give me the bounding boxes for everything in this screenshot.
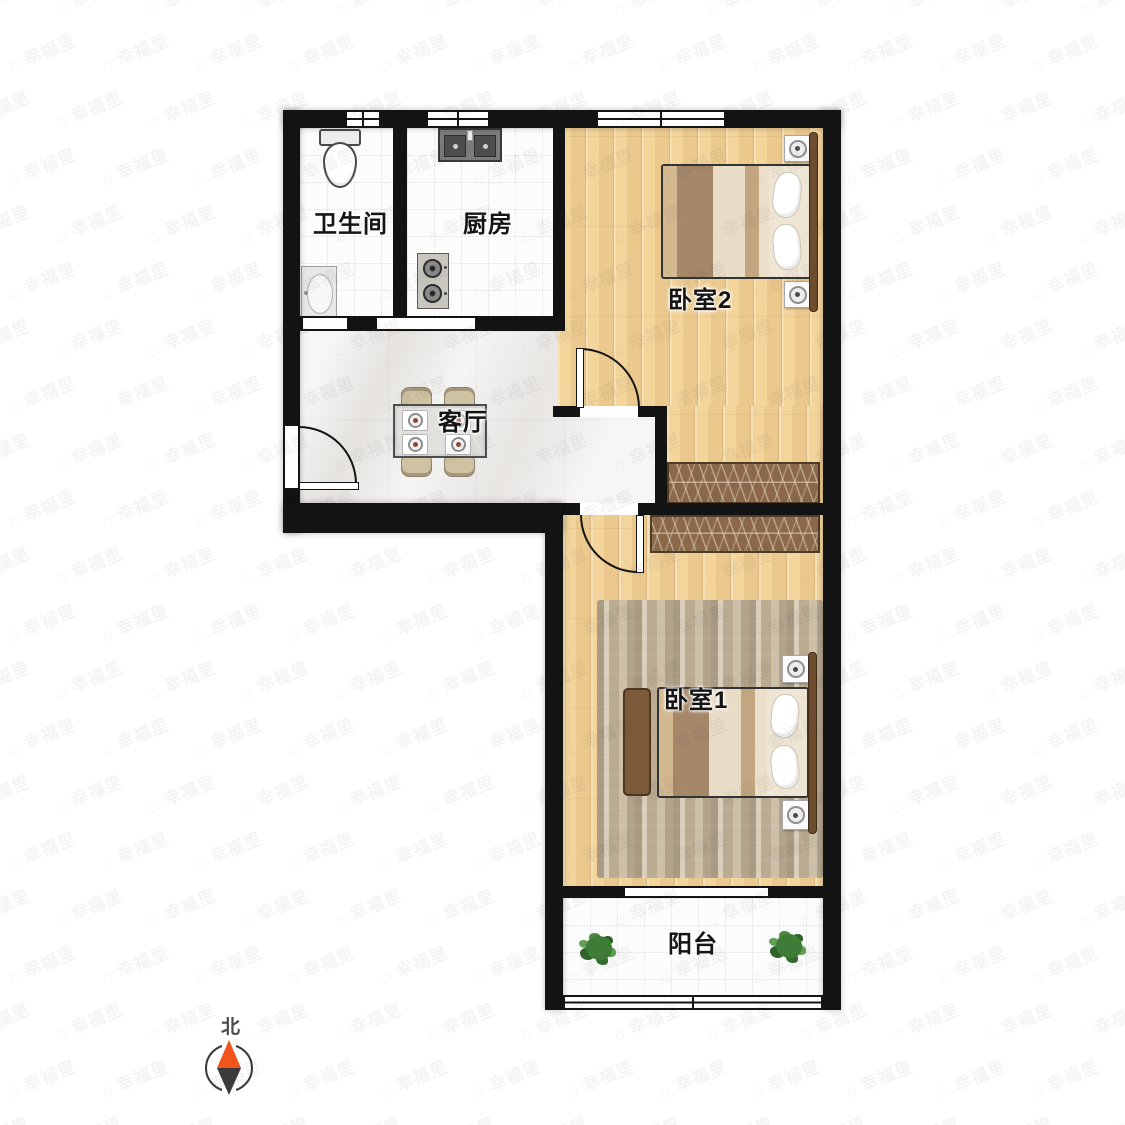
watermark-item: ⌂ 幸福里: [748, 27, 823, 77]
watermark-item: ⌂ 幸福里: [1074, 654, 1125, 704]
watermark-item: ⌂ 幸福里: [469, 27, 544, 77]
compass-needle-north: [217, 1040, 241, 1068]
watermark-item: ⌂ 幸福里: [97, 597, 172, 647]
watermark-item: ⌂ 幸福里: [51, 540, 126, 590]
balcony-sliding-opening: [625, 886, 768, 898]
watermark-item: ⌂ 幸福里: [609, 0, 684, 19]
watermark-item: ⌂ 幸福里: [0, 1110, 33, 1125]
sink-basin-left: [444, 135, 466, 157]
watermark-item: ⌂ 幸福里: [841, 939, 916, 989]
watermark-item: ⌂ 幸福里: [190, 939, 265, 989]
watermark-item: ⌂ 幸福里: [283, 825, 358, 875]
watermark-item: ⌂ 幸福里: [1120, 939, 1125, 989]
watermark-item: ⌂ 幸福里: [562, 27, 637, 77]
watermark-item: ⌂ 幸福里: [190, 369, 265, 419]
watermark-item: ⌂ 幸福里: [0, 996, 33, 1046]
watermark-item: ⌂ 幸福里: [748, 1053, 823, 1103]
watermark-item: ⌂ 幸福里: [4, 27, 79, 77]
watermark-item: ⌂ 幸福里: [0, 0, 33, 19]
watermark-item: ⌂ 幸福里: [841, 483, 916, 533]
watermark-item: ⌂ 幸福里: [562, 1053, 637, 1103]
watermark-item: ⌂ 幸福里: [237, 540, 312, 590]
kitchen-label: 厨房: [463, 212, 513, 238]
watermark-item: ⌂ 幸福里: [888, 996, 963, 1046]
watermark-item: ⌂ 幸福里: [97, 483, 172, 533]
faucet-icon: [467, 130, 473, 141]
watermark-item: ⌂ 幸福里: [981, 768, 1056, 818]
watermark-item: ⌂ 幸福里: [516, 0, 591, 19]
bedroom1-wardrobe: [650, 515, 820, 553]
watermark-item: ⌂ 幸福里: [609, 1110, 684, 1125]
watermark-item: ⌂ 幸福里: [1074, 312, 1125, 362]
watermark-item: ⌂ 幸福里: [4, 483, 79, 533]
watermark-item: ⌂ 幸福里: [469, 1053, 544, 1103]
bedroom1-door-leaf: [636, 515, 644, 573]
watermark-item: ⌂ 幸福里: [841, 369, 916, 419]
watermark-item: ⌂ 幸福里: [376, 711, 451, 761]
watermark-item: ⌂ 幸福里: [934, 369, 1009, 419]
nightstand-icon: [784, 135, 811, 162]
watermark-item: ⌂ 幸福里: [841, 141, 916, 191]
watermark-item: ⌂ 幸福里: [97, 369, 172, 419]
balcony-window: [563, 995, 823, 1010]
watermark-item: ⌂ 幸福里: [51, 0, 126, 19]
pillow-icon: [769, 744, 801, 791]
bedroom2-wardrobe: [667, 462, 820, 504]
stove-icon: [417, 253, 449, 309]
pillow-icon: [769, 693, 801, 739]
watermark-item: ⌂ 幸福里: [516, 1110, 591, 1125]
bed-pillow-area: [767, 689, 807, 796]
watermark-item: ⌂ 幸福里: [888, 882, 963, 932]
wall-balcony-north-right: [768, 886, 823, 898]
watermark-item: ⌂ 幸福里: [1074, 426, 1125, 476]
watermark-item: ⌂ 幸福里: [51, 198, 126, 248]
watermark-item: ⌂ 幸福里: [888, 654, 963, 704]
burner-icon: [423, 284, 442, 303]
watermark-item: ⌂ 幸福里: [1027, 939, 1102, 989]
pillow-icon: [770, 170, 803, 219]
watermark-item: ⌂ 幸福里: [1120, 597, 1125, 647]
watermark-item: ⌂ 幸福里: [934, 483, 1009, 533]
watermark-item: ⌂ 幸福里: [934, 825, 1009, 875]
watermark-item: ⌂ 幸福里: [97, 1053, 172, 1103]
watermark-item: ⌂ 幸福里: [283, 939, 358, 989]
watermark-item: ⌂ 幸福里: [655, 27, 730, 77]
wall-bedroom1-north-right: [639, 503, 841, 515]
watermark-item: ⌂ 幸福里: [1074, 996, 1125, 1046]
burner-icon: [423, 259, 442, 278]
wall-kitchen-bedroom2-divider: [553, 128, 565, 331]
watermark-item: ⌂ 幸福里: [981, 1110, 1056, 1125]
watermark-item: ⌂ 幸福里: [934, 255, 1009, 305]
watermark-item: ⌂ 幸福里: [981, 996, 1056, 1046]
watermark-item: ⌂ 幸福里: [981, 198, 1056, 248]
watermark-item: ⌂ 幸福里: [97, 711, 172, 761]
watermark-item: ⌂ 幸福里: [97, 255, 172, 305]
watermark-item: ⌂ 幸福里: [1027, 597, 1102, 647]
watermark-item: ⌂ 幸福里: [1074, 0, 1125, 19]
pillow-icon: [771, 223, 803, 271]
watermark-item: ⌂ 幸福里: [1074, 198, 1125, 248]
watermark-item: ⌂ 幸福里: [0, 882, 33, 932]
watermark-item: ⌂ 幸福里: [144, 540, 219, 590]
watermark-item: ⌂ 幸福里: [423, 540, 498, 590]
watermark-item: ⌂ 幸福里: [469, 939, 544, 989]
watermark-item: ⌂ 幸福里: [469, 825, 544, 875]
watermark-item: ⌂ 幸福里: [795, 1110, 870, 1125]
watermark-item: ⌂ 幸福里: [51, 84, 126, 134]
watermark-item: ⌂ 幸福里: [237, 654, 312, 704]
watermark-item: ⌂ 幸福里: [51, 312, 126, 362]
watermark-item: ⌂ 幸福里: [190, 255, 265, 305]
place-setting-icon: [402, 410, 428, 431]
watermark-item: ⌂ 幸福里: [283, 27, 358, 77]
watermark-item: ⌂ 幸福里: [330, 1110, 405, 1125]
watermark-item: ⌂ 幸福里: [1074, 540, 1125, 590]
watermark-item: ⌂ 幸福里: [1120, 483, 1125, 533]
bathroom-door-opening: [303, 316, 347, 331]
watermark-item: ⌂ 幸福里: [981, 654, 1056, 704]
watermark-item: ⌂ 幸福里: [1120, 711, 1125, 761]
watermark-item: ⌂ 幸福里: [97, 825, 172, 875]
watermark-item: ⌂ 幸福里: [841, 27, 916, 77]
watermark-item: ⌂ 幸福里: [51, 426, 126, 476]
watermark-item: ⌂ 幸福里: [423, 654, 498, 704]
watermark-item: ⌂ 幸福里: [469, 597, 544, 647]
watermark-item: ⌂ 幸福里: [330, 540, 405, 590]
bed-blanket: [663, 166, 769, 277]
watermark-item: ⌂ 幸福里: [0, 768, 33, 818]
watermark-item: ⌂ 幸福里: [841, 711, 916, 761]
kitchen-sink-icon: [438, 128, 502, 162]
bathroom-label: 卫生间: [313, 212, 388, 238]
watermark-item: ⌂ 幸福里: [1027, 141, 1102, 191]
watermark-item: ⌂ 幸福里: [888, 0, 963, 19]
watermark-item: ⌂ 幸福里: [981, 84, 1056, 134]
watermark-item: ⌂ 幸福里: [4, 1053, 79, 1103]
watermark-item: ⌂ 幸福里: [51, 1110, 126, 1125]
kitchen-window: [426, 110, 490, 128]
watermark-item: ⌂ 幸福里: [330, 882, 405, 932]
bed-end-bench: [623, 688, 651, 796]
nightstand-icon: [784, 281, 811, 308]
living-room-label: 客厅: [438, 410, 488, 436]
watermark-item: ⌂ 幸福里: [4, 597, 79, 647]
watermark-item: ⌂ 幸福里: [144, 426, 219, 476]
watermark-item: ⌂ 幸福里: [981, 0, 1056, 19]
watermark-item: ⌂ 幸福里: [283, 597, 358, 647]
watermark-item: ⌂ 幸福里: [981, 882, 1056, 932]
watermark-item: ⌂ 幸福里: [795, 0, 870, 19]
watermark-item: ⌂ 幸福里: [0, 654, 33, 704]
watermark-item: ⌂ 幸福里: [330, 768, 405, 818]
watermark-item: ⌂ 幸福里: [144, 84, 219, 134]
watermark-item: ⌂ 幸福里: [469, 711, 544, 761]
nightstand-icon: [782, 800, 809, 830]
dining-chair: [401, 457, 432, 477]
watermark-item: ⌂ 幸福里: [1074, 882, 1125, 932]
watermark-item: ⌂ 幸福里: [237, 1110, 312, 1125]
dining-chair: [444, 457, 475, 477]
watermark-item: ⌂ 幸福里: [376, 825, 451, 875]
watermark-item: ⌂ 幸福里: [888, 1110, 963, 1125]
watermark-item: ⌂ 幸福里: [888, 426, 963, 476]
watermark-item: ⌂ 幸福里: [97, 939, 172, 989]
watermark-item: ⌂ 幸福里: [4, 825, 79, 875]
watermark-item: ⌂ 幸福里: [97, 141, 172, 191]
watermark-item: ⌂ 幸福里: [888, 768, 963, 818]
compass-needle-south: [217, 1068, 241, 1095]
watermark-item: ⌂ 幸福里: [144, 768, 219, 818]
nightstand-icon: [782, 655, 809, 683]
watermark-item: ⌂ 幸福里: [934, 711, 1009, 761]
watermark-item: ⌂ 幸福里: [144, 882, 219, 932]
watermark-item: ⌂ 幸福里: [4, 369, 79, 419]
watermark-item: ⌂ 幸福里: [144, 312, 219, 362]
bathroom-window: [345, 110, 381, 128]
watermark-item: ⌂ 幸福里: [702, 1110, 777, 1125]
bedroom2-window: [596, 110, 726, 128]
wall-right: [823, 110, 841, 1010]
watermark-item: ⌂ 幸福里: [1120, 27, 1125, 77]
watermark-item: ⌂ 幸福里: [1027, 1053, 1102, 1103]
watermark-item: ⌂ 幸福里: [888, 84, 963, 134]
watermark-item: ⌂ 幸福里: [4, 141, 79, 191]
watermark-item: ⌂ 幸福里: [237, 768, 312, 818]
wall-corridor-bedroom2: [655, 406, 667, 515]
watermark-item: ⌂ 幸福里: [237, 882, 312, 932]
watermark-item: ⌂ 幸福里: [190, 597, 265, 647]
watermark-item: ⌂ 幸福里: [1027, 711, 1102, 761]
watermark-item: ⌂ 幸福里: [934, 141, 1009, 191]
watermark-item: ⌂ 幸福里: [1027, 369, 1102, 419]
watermark-item: ⌂ 幸福里: [0, 84, 33, 134]
watermark-item: ⌂ 幸福里: [190, 141, 265, 191]
watermark-item: ⌂ 幸福里: [376, 27, 451, 77]
bedroom1-label: 卧室1: [664, 688, 728, 714]
wall-living-south: [283, 503, 563, 533]
bedroom2-bed: [661, 164, 811, 279]
watermark-item: ⌂ 幸福里: [237, 996, 312, 1046]
watermark-item: ⌂ 幸福里: [4, 255, 79, 305]
watermark-item: ⌂ 幸福里: [888, 198, 963, 248]
watermark-item: ⌂ 幸福里: [0, 198, 33, 248]
watermark-item: ⌂ 幸福里: [1074, 1110, 1125, 1125]
watermark-item: ⌂ 幸福里: [190, 825, 265, 875]
watermark-item: ⌂ 幸福里: [237, 0, 312, 19]
watermark-item: ⌂ 幸福里: [283, 711, 358, 761]
watermark-item: ⌂ 幸福里: [1027, 483, 1102, 533]
place-setting-icon: [445, 434, 471, 455]
watermark-item: ⌂ 幸福里: [51, 768, 126, 818]
watermark-item: ⌂ 幸福里: [655, 1053, 730, 1103]
watermark-item: ⌂ 幸福里: [330, 654, 405, 704]
watermark-item: ⌂ 幸福里: [888, 312, 963, 362]
watermark-item: ⌂ 幸福里: [190, 711, 265, 761]
watermark-item: ⌂ 幸福里: [934, 939, 1009, 989]
watermark-item: ⌂ 幸福里: [1120, 1053, 1125, 1103]
watermark-item: ⌂ 幸福里: [1120, 255, 1125, 305]
stove-knob: [444, 292, 447, 295]
watermark-item: ⌂ 幸福里: [888, 540, 963, 590]
bedroom1-door-threshold: [579, 503, 639, 515]
watermark-item: ⌂ 幸福里: [97, 27, 172, 77]
watermark-item: ⌂ 幸福里: [841, 597, 916, 647]
plant-icon: [586, 936, 612, 960]
watermark-item: ⌂ 幸福里: [423, 882, 498, 932]
watermark-item: ⌂ 幸福里: [841, 1053, 916, 1103]
watermark-item: ⌂ 幸福里: [144, 198, 219, 248]
watermark-item: ⌂ 幸福里: [981, 312, 1056, 362]
watermark-item: ⌂ 幸福里: [1027, 27, 1102, 77]
watermark-item: ⌂ 幸福里: [981, 426, 1056, 476]
bedroom2-door-leaf: [576, 348, 584, 408]
bed-pillow-area: [769, 166, 809, 277]
kitchen-door-opening: [377, 316, 475, 331]
watermark-item: ⌂ 幸福里: [1027, 825, 1102, 875]
watermark-item: ⌂ 幸福里: [4, 939, 79, 989]
stove-knob: [444, 266, 447, 269]
watermark-item: ⌂ 幸福里: [376, 939, 451, 989]
watermark-item: ⌂ 幸福里: [0, 540, 33, 590]
watermark-item: ⌂ 幸福里: [0, 426, 33, 476]
watermark-item: ⌂ 幸福里: [144, 0, 219, 19]
watermark-item: ⌂ 幸福里: [934, 27, 1009, 77]
watermark-item: ⌂ 幸福里: [981, 540, 1056, 590]
floorplan-canvas: 卫生间 厨房 卧室2 客厅 卧室1 阳台 北 ⌂ 幸福里⌂ 幸福里⌂ 幸福里⌂ …: [0, 0, 1125, 1125]
watermark-item: ⌂ 幸福里: [4, 711, 79, 761]
watermark-item: ⌂ 幸福里: [423, 768, 498, 818]
wall-bedroom1-north-left: [563, 503, 579, 515]
watermark-item: ⌂ 幸福里: [423, 996, 498, 1046]
watermark-item: ⌂ 幸福里: [0, 312, 33, 362]
watermark-item: ⌂ 幸福里: [423, 1110, 498, 1125]
watermark-item: ⌂ 幸福里: [423, 0, 498, 19]
watermark-item: ⌂ 幸福里: [1120, 825, 1125, 875]
watermark-item: ⌂ 幸福里: [283, 1053, 358, 1103]
watermark-item: ⌂ 幸福里: [330, 0, 405, 19]
watermark-item: ⌂ 幸福里: [934, 597, 1009, 647]
watermark-item: ⌂ 幸福里: [144, 996, 219, 1046]
watermark-item: ⌂ 幸福里: [841, 255, 916, 305]
watermark-item: ⌂ 幸福里: [1074, 84, 1125, 134]
balcony-label: 阳台: [668, 932, 718, 958]
watermark-item: ⌂ 幸福里: [330, 996, 405, 1046]
bathroom-sink-icon: [301, 266, 337, 320]
bedroom2-label: 卧室2: [668, 288, 732, 314]
watermark-item: ⌂ 幸福里: [841, 825, 916, 875]
watermark-item: ⌂ 幸福里: [51, 996, 126, 1046]
watermark-item: ⌂ 幸福里: [144, 654, 219, 704]
watermark-item: ⌂ 幸福里: [1074, 768, 1125, 818]
watermark-item: ⌂ 幸福里: [376, 1053, 451, 1103]
wall-balcony-north-left: [563, 886, 625, 898]
bed-headboard: [809, 132, 818, 312]
compass-north-label: 北: [221, 1012, 240, 1039]
watermark-item: ⌂ 幸福里: [144, 1110, 219, 1125]
plant-icon: [776, 934, 802, 958]
watermark-item: ⌂ 幸福里: [376, 597, 451, 647]
wall-left-lower: [545, 503, 563, 1010]
watermark-item: ⌂ 幸福里: [51, 882, 126, 932]
watermark-item: ⌂ 幸福里: [1120, 141, 1125, 191]
sink-basin-right: [474, 135, 496, 157]
watermark-item: ⌂ 幸福里: [190, 483, 265, 533]
watermark-item: ⌂ 幸福里: [702, 0, 777, 19]
watermark-item: ⌂ 幸福里: [934, 1053, 1009, 1103]
watermark-item: ⌂ 幸福里: [51, 654, 126, 704]
place-setting-icon: [402, 434, 428, 455]
watermark-item: ⌂ 幸福里: [190, 27, 265, 77]
entrance-door-leaf: [299, 482, 359, 490]
entrance-door-opening: [283, 426, 300, 488]
wall-bath-kitchen-divider: [393, 128, 407, 320]
bed-headboard: [808, 652, 817, 834]
watermark-item: ⌂ 幸福里: [1120, 369, 1125, 419]
watermark-item: ⌂ 幸福里: [1027, 255, 1102, 305]
